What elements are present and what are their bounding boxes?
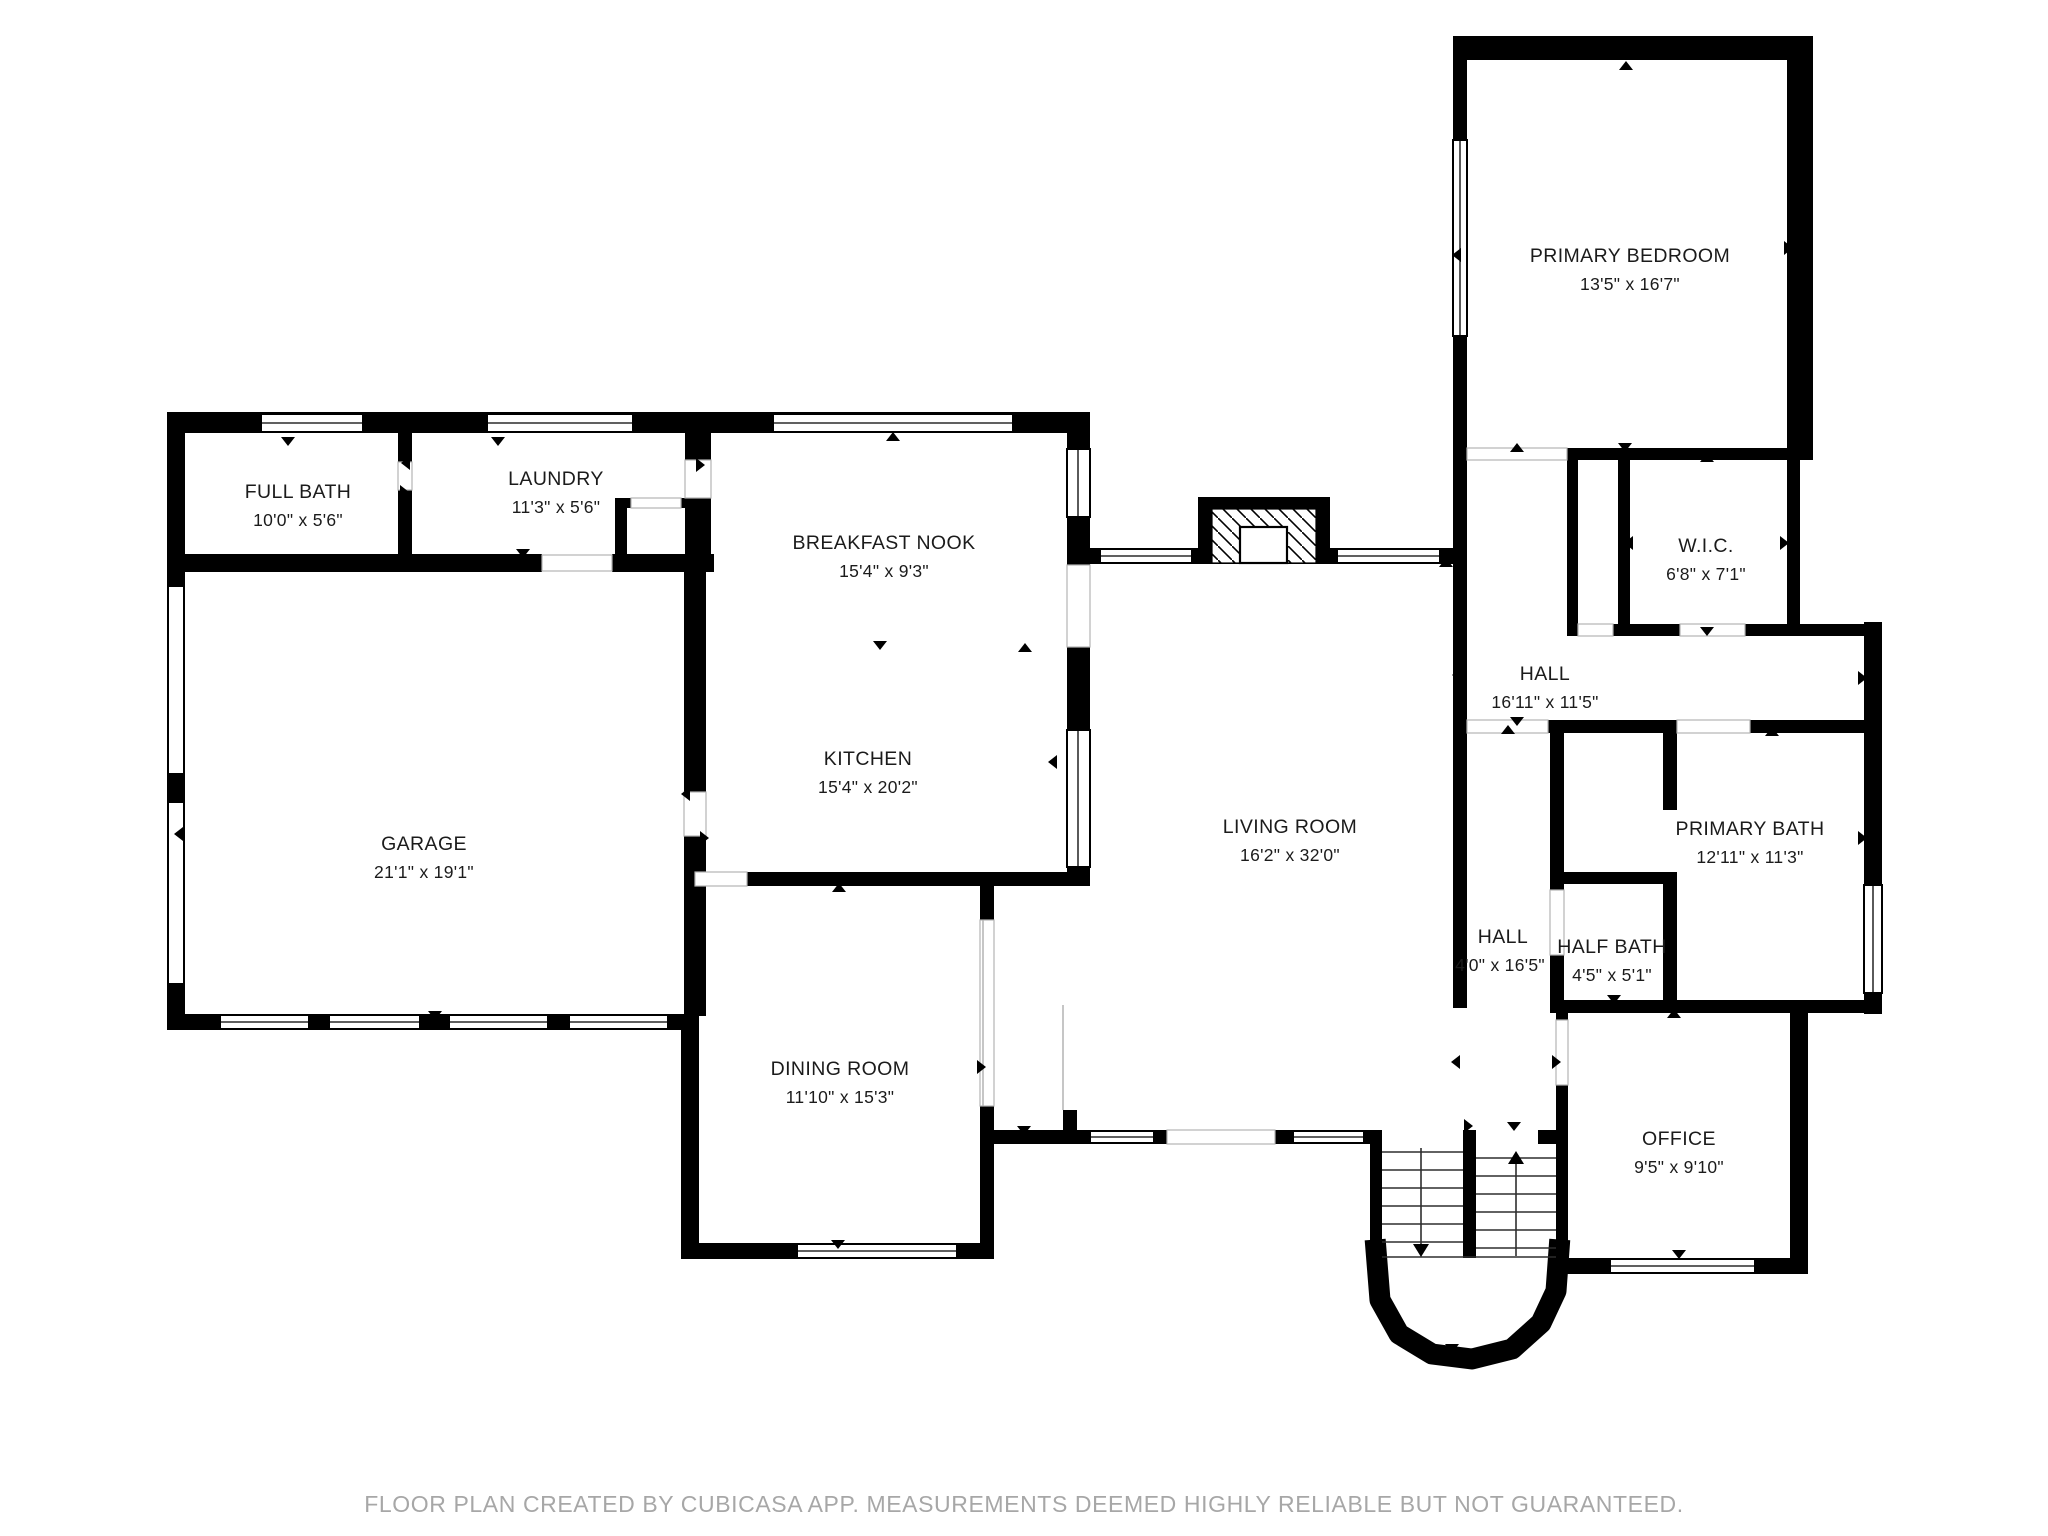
stair-bay-wall <box>1376 1250 1559 1359</box>
room-label-wic: W.I.C. 6'8" x 7'1" <box>1666 535 1746 584</box>
svg-text:6'8" x 7'1": 6'8" x 7'1" <box>1666 564 1746 584</box>
svg-text:15'4" x 20'2": 15'4" x 20'2" <box>818 777 918 797</box>
room-label-hall-lower: HALL 4'0" x 16'5" <box>1455 926 1545 975</box>
dining-entry-opening <box>980 920 994 1106</box>
room-label-laundry: LAUNDRY 11'3" x 5'6" <box>508 468 604 517</box>
svg-text:16'2" x 32'0": 16'2" x 32'0" <box>1240 845 1340 865</box>
office-door <box>1556 1020 1568 1085</box>
svg-text:11'10" x 15'3": 11'10" x 15'3" <box>786 1087 895 1107</box>
svg-text:16'11" x 11'5": 16'11" x 11'5" <box>1491 692 1598 712</box>
svg-text:15'4" x 9'3": 15'4" x 9'3" <box>839 561 929 581</box>
wic-door <box>1680 624 1745 636</box>
kitchen-dining-opening <box>695 872 747 886</box>
svg-text:HALL: HALL <box>1520 663 1570 685</box>
svg-text:HALL: HALL <box>1478 926 1528 948</box>
svg-text:KITCHEN: KITCHEN <box>824 748 912 770</box>
svg-text:OFFICE: OFFICE <box>1642 1128 1716 1150</box>
svg-text:LIVING ROOM: LIVING ROOM <box>1223 816 1357 838</box>
floor-plan-svg: PRIMARY BEDROOM 13'5" x 16'7" FULL BATH … <box>0 0 2048 1536</box>
svg-text:9'5" x 9'10": 9'5" x 9'10" <box>1634 1157 1724 1177</box>
svg-text:4'0" x 16'5": 4'0" x 16'5" <box>1455 955 1545 975</box>
window <box>1293 1131 1364 1143</box>
svg-text:21'1" x 19'1": 21'1" x 19'1" <box>374 862 474 882</box>
kitchen-living-opening <box>1067 565 1090 647</box>
window <box>1100 549 1192 563</box>
window <box>773 414 1013 432</box>
garage-door-panel <box>569 1015 668 1029</box>
stair-down-arrow <box>1413 1148 1429 1257</box>
window <box>1337 549 1440 563</box>
svg-text:FULL BATH: FULL BATH <box>245 481 352 503</box>
svg-text:4'5" x 5'1": 4'5" x 5'1" <box>1572 965 1652 985</box>
svg-text:10'0" x 5'6": 10'0" x 5'6" <box>253 510 343 530</box>
svg-text:BREAKFAST NOOK: BREAKFAST NOOK <box>793 532 976 554</box>
garage-door-panel <box>220 1015 309 1029</box>
window <box>487 414 633 432</box>
svg-text:12'11" x 11'3": 12'11" x 11'3" <box>1696 847 1803 867</box>
room-label-full-bath: FULL BATH 10'0" x 5'6" <box>245 481 352 530</box>
svg-text:W.I.C.: W.I.C. <box>1678 535 1733 557</box>
room-label-primary-bath: PRIMARY BATH 12'11" x 11'3" <box>1676 818 1825 867</box>
fireplace <box>1198 497 1330 563</box>
room-label-hall-upper: HALL 16'11" x 11'5" <box>1491 663 1598 712</box>
window <box>1453 140 1467 336</box>
garage-west-glazing <box>168 586 184 774</box>
laundry-garage-door <box>542 555 612 571</box>
garage-door-panel <box>329 1015 420 1029</box>
svg-text:HALF BATH: HALF BATH <box>1557 936 1666 958</box>
svg-text:DINING ROOM: DINING ROOM <box>771 1058 910 1080</box>
room-label-living-room: LIVING ROOM 16'2" x 32'0" <box>1223 816 1357 865</box>
primary-bath-door <box>1677 720 1750 733</box>
window <box>797 1244 957 1258</box>
window <box>1610 1259 1755 1273</box>
window <box>1067 730 1090 867</box>
window <box>1864 885 1882 993</box>
room-label-dining-room: DINING ROOM 11'10" x 15'3" <box>771 1058 910 1107</box>
floor-plan-page: PRIMARY BEDROOM 13'5" x 16'7" FULL BATH … <box>0 0 2048 1536</box>
room-label-primary-bedroom: PRIMARY BEDROOM 13'5" x 16'7" <box>1530 245 1730 294</box>
windows <box>168 140 1882 1273</box>
svg-text:PRIMARY BEDROOM: PRIMARY BEDROOM <box>1530 245 1730 267</box>
svg-text:13'5" x 16'7": 13'5" x 16'7" <box>1580 274 1680 294</box>
hall-closet-opening <box>1578 624 1613 636</box>
room-label-office: OFFICE 9'5" x 9'10" <box>1634 1128 1724 1177</box>
window <box>261 414 363 432</box>
svg-text:LAUNDRY: LAUNDRY <box>508 468 604 490</box>
room-label-garage: GARAGE 21'1" x 19'1" <box>374 833 474 882</box>
window <box>1067 449 1090 517</box>
stair-up-arrow <box>1508 1151 1524 1256</box>
room-label-kitchen: KITCHEN 15'4" x 20'2" <box>818 748 918 797</box>
front-door-opening <box>1167 1130 1275 1144</box>
room-label-breakfast-nook: BREAKFAST NOOK 15'4" x 9'3" <box>793 532 976 581</box>
footer-disclaimer: FLOOR PLAN CREATED BY CUBICASA APP. MEAS… <box>364 1491 1684 1517</box>
svg-text:PRIMARY BATH: PRIMARY BATH <box>1676 818 1825 840</box>
garage-door-panel <box>449 1015 548 1029</box>
svg-text:11'3" x 5'6": 11'3" x 5'6" <box>512 497 601 517</box>
room-label-half-bath: HALF BATH 4'5" x 5'1" <box>1557 936 1666 985</box>
room-labels: PRIMARY BEDROOM 13'5" x 16'7" FULL BATH … <box>245 245 1825 1177</box>
window <box>1090 1131 1154 1143</box>
closet-opening <box>631 498 681 508</box>
walls <box>167 36 1882 1274</box>
svg-text:GARAGE: GARAGE <box>381 833 467 855</box>
